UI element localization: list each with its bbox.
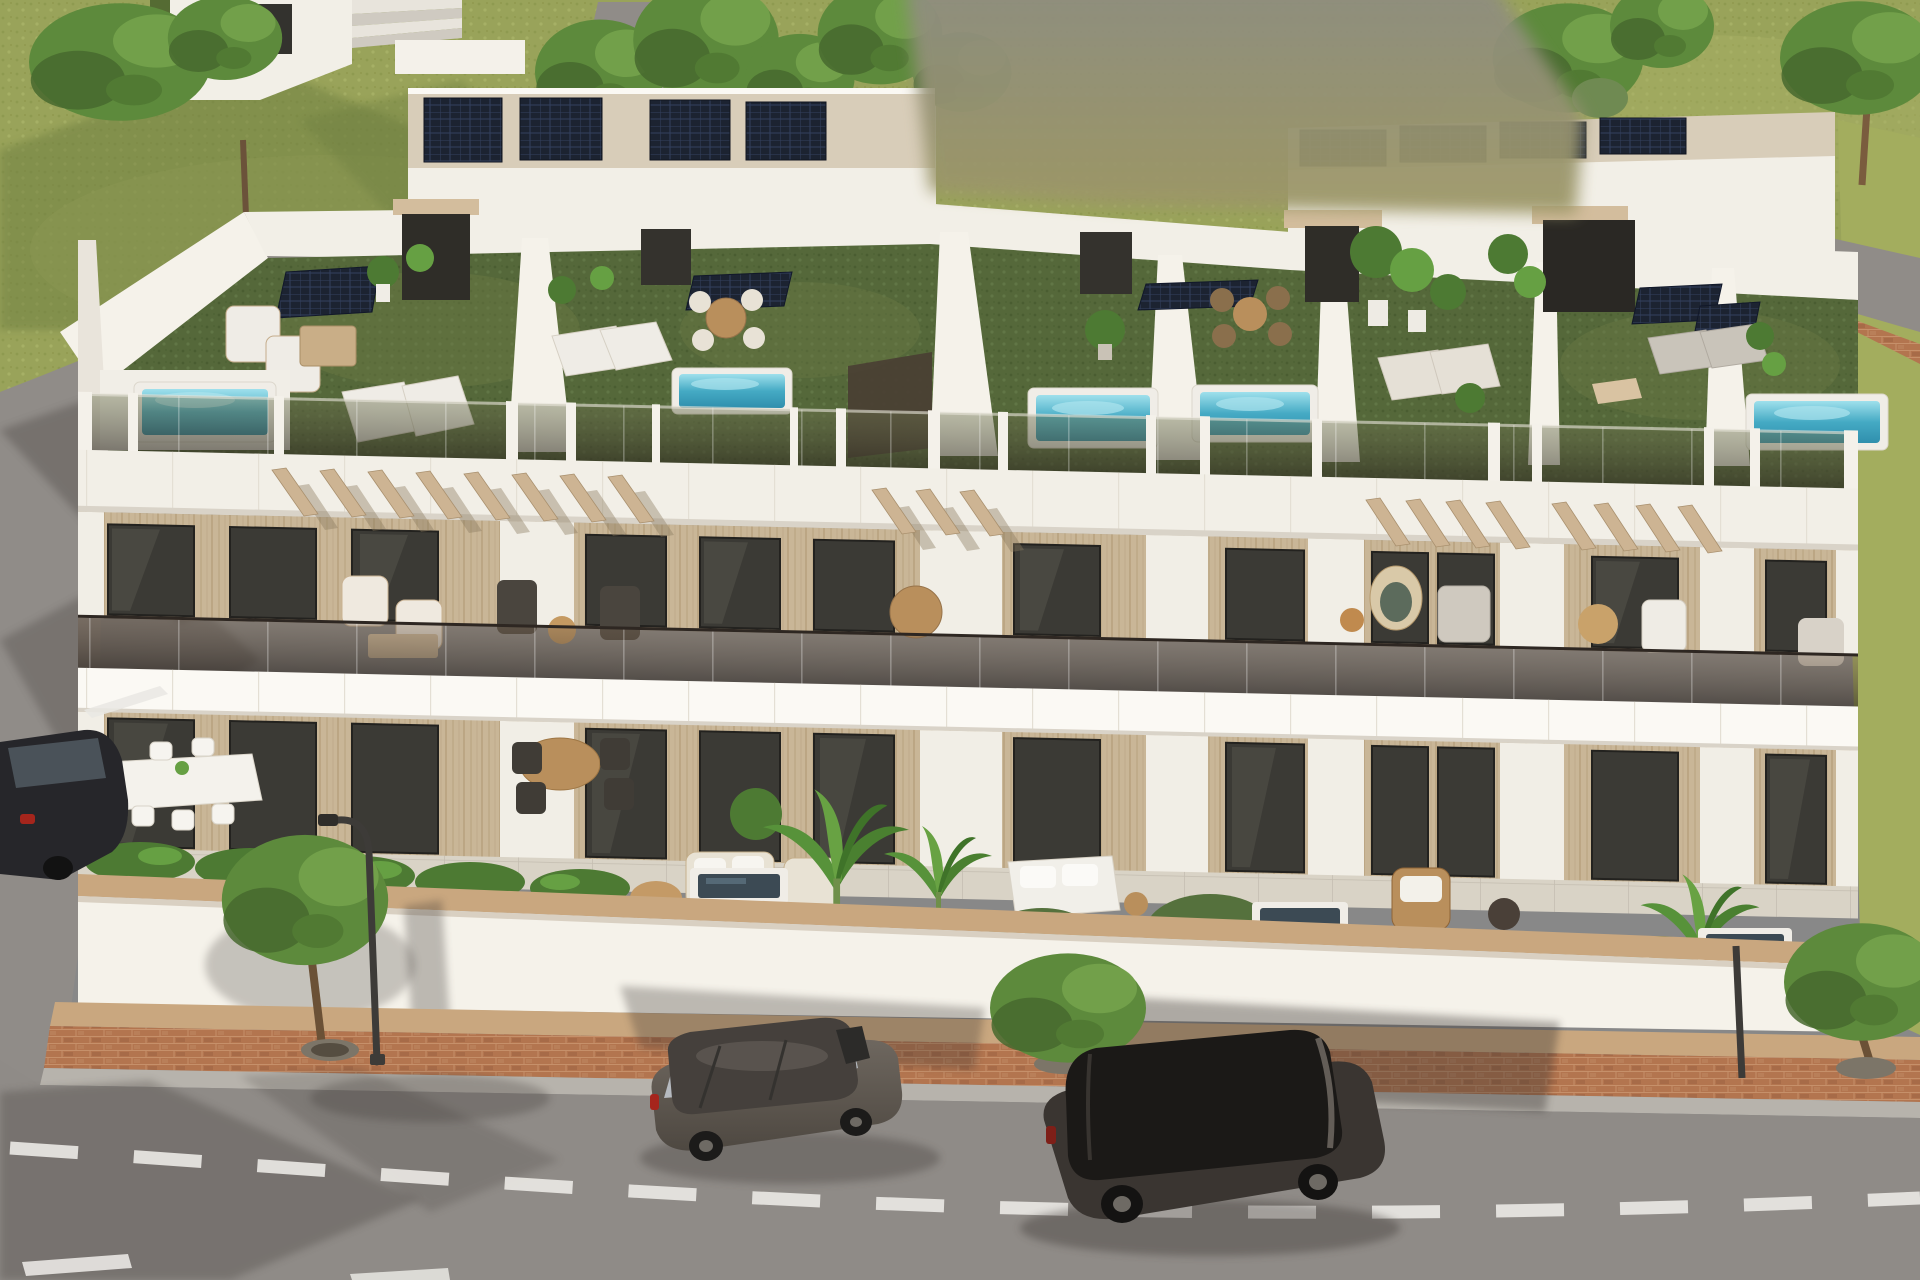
dark-chair — [512, 742, 542, 774]
palm-plant — [730, 788, 782, 840]
architectural-render — [0, 0, 1920, 1280]
tree-canopy — [1784, 923, 1920, 1041]
tree-shadow — [310, 1074, 550, 1122]
chair — [692, 329, 714, 351]
armchair — [1438, 586, 1490, 642]
side-table — [1340, 608, 1364, 632]
potted-plant — [1762, 352, 1786, 376]
bush — [1455, 383, 1485, 413]
potted-plant — [1488, 234, 1528, 274]
dining-chair — [132, 806, 154, 826]
dark-chair — [600, 738, 630, 770]
door-lintel — [393, 199, 479, 215]
white-chair — [1642, 600, 1686, 652]
potted-plant — [367, 256, 399, 288]
plant-pot — [1098, 344, 1112, 360]
solar-panel-flat — [276, 266, 380, 318]
rattan-chair — [1268, 322, 1292, 346]
water-highlight — [1052, 401, 1124, 415]
potted-plant — [1390, 248, 1434, 292]
planter-soil — [311, 1043, 349, 1057]
rattan-chair — [1210, 288, 1234, 312]
wheel-hub — [699, 1140, 713, 1152]
potted-plant — [1430, 274, 1466, 310]
solar-panel — [520, 98, 602, 160]
solar-panel — [650, 100, 730, 160]
rattan-chair — [1266, 286, 1290, 310]
cushion — [1020, 866, 1056, 888]
cushion — [1400, 876, 1442, 902]
potted-plant — [590, 266, 614, 290]
water-highlight — [1216, 397, 1284, 411]
door-lintel — [1284, 210, 1382, 228]
dining-chair — [192, 738, 214, 756]
potted-plant — [548, 276, 576, 304]
wheel-hub — [1309, 1174, 1327, 1190]
dining-chair — [150, 742, 172, 760]
taillight — [1046, 1126, 1056, 1144]
chair — [689, 291, 711, 313]
lamp-head — [318, 814, 338, 826]
water-highlight — [1774, 406, 1850, 420]
potted-plant — [406, 244, 434, 272]
dining-chair — [212, 804, 234, 824]
solar-panel — [746, 102, 826, 160]
penthouse-left — [408, 88, 935, 242]
plant-pot — [1408, 310, 1426, 332]
roof-door — [1543, 220, 1635, 312]
water-highlight — [691, 378, 759, 390]
wheel-hub — [1113, 1196, 1131, 1212]
neighbor-roof-slab — [395, 40, 525, 74]
coffee-table — [300, 326, 356, 366]
balcony-table-round — [890, 586, 942, 638]
table-plant — [175, 761, 189, 775]
wicker-chair — [342, 576, 388, 626]
dark-chair — [516, 782, 546, 814]
blurred-watermark-patch — [906, 0, 1584, 214]
roof-gloss — [1088, 1054, 1090, 1160]
tree-canopy — [222, 835, 388, 965]
roof-door — [1305, 226, 1359, 302]
car-roof — [1066, 1030, 1343, 1180]
table-round — [1233, 297, 1267, 331]
taillight — [20, 814, 35, 824]
roof-door — [641, 229, 691, 285]
dining-table-round — [706, 298, 746, 338]
taillight — [650, 1094, 659, 1110]
balcony-table — [1578, 604, 1618, 644]
tree-planter — [1836, 1057, 1896, 1079]
potted-plant — [1746, 322, 1774, 350]
plant-pot — [376, 284, 390, 302]
wheel — [43, 856, 73, 880]
chair — [741, 289, 763, 311]
dining-chair — [172, 810, 194, 830]
lamp-base — [370, 1054, 385, 1065]
solar-panel — [424, 98, 502, 162]
side-table — [1124, 892, 1148, 916]
egg-chair-cushion — [1380, 582, 1412, 622]
ground-pool — [690, 868, 788, 904]
round-table-dark — [1488, 898, 1520, 930]
wheel-hub — [850, 1117, 862, 1127]
cushion — [1062, 864, 1098, 886]
potted-plant — [1514, 266, 1546, 298]
dark-chair — [604, 778, 634, 810]
rattan-chair — [1212, 324, 1236, 348]
roof-door — [1080, 232, 1132, 294]
plant-pot — [1368, 300, 1388, 326]
chair — [743, 327, 765, 349]
solar-panel — [1600, 118, 1686, 154]
